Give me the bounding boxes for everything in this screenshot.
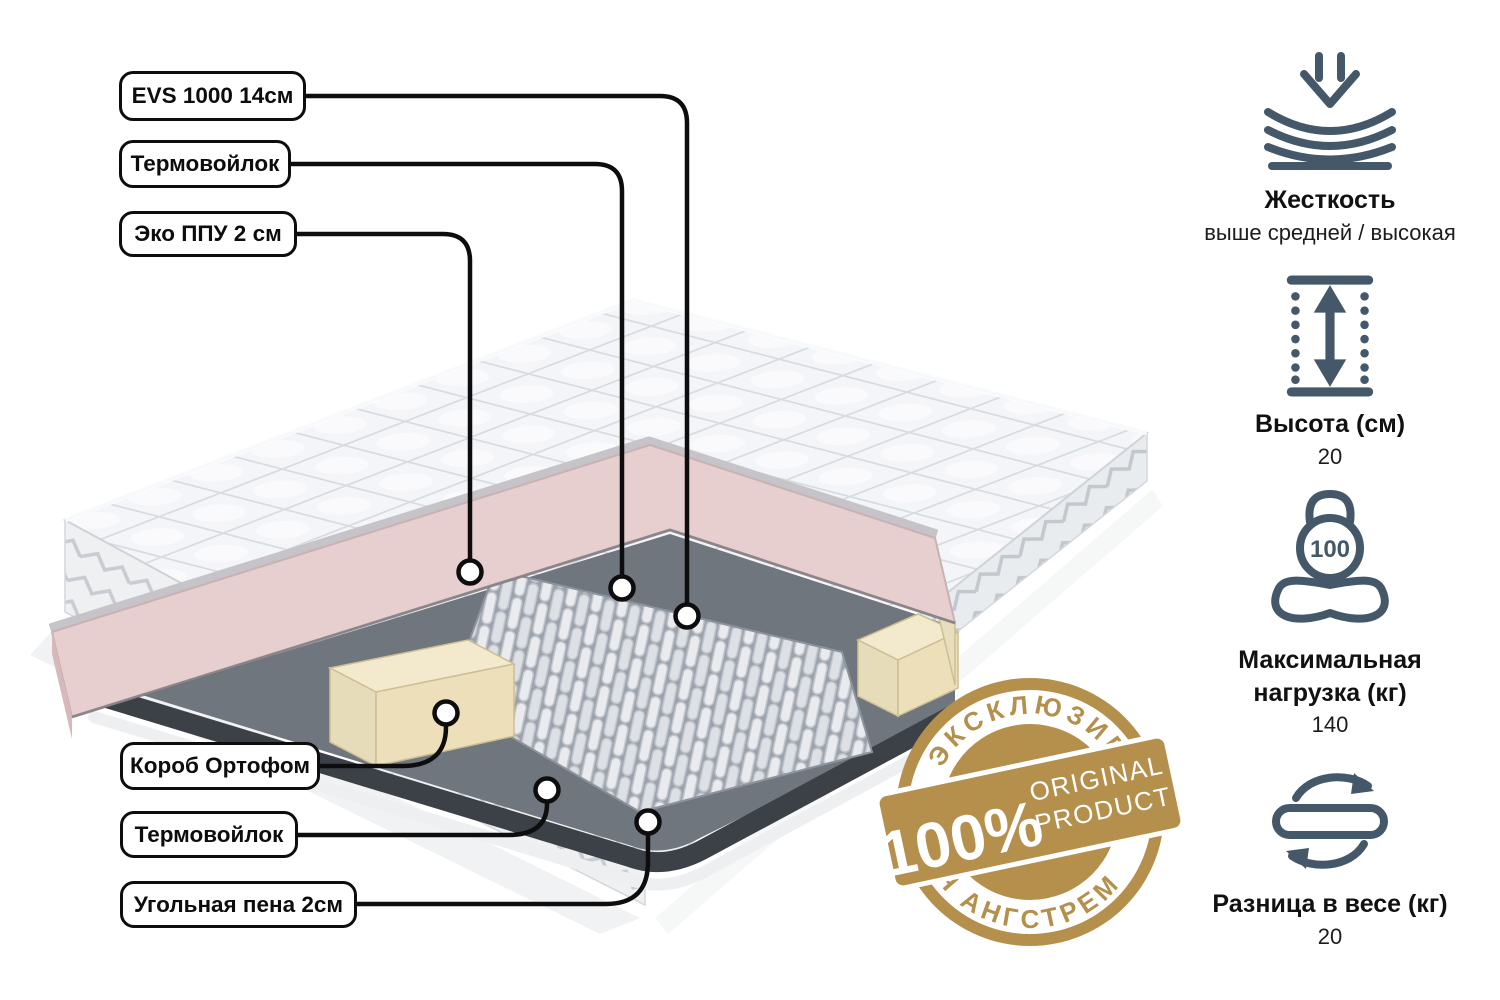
callout-dot (536, 779, 559, 802)
spec-value: выше средней / высокая (1160, 219, 1500, 247)
spec-value: 20 (1160, 923, 1500, 951)
callout-dot (435, 702, 458, 725)
spec-firmness: Жесткость выше средней / высокая (1160, 52, 1500, 246)
spec-height: Высота (см) 20 (1160, 274, 1500, 470)
firmness-icon (1260, 52, 1400, 174)
height-icon (1283, 274, 1377, 398)
spec-title: Максимальная нагрузка (кг) (1195, 644, 1465, 709)
callout-dot (676, 605, 699, 628)
spec-weight-difference: Разница в весе (кг) 20 (1160, 764, 1500, 950)
callout-label-evs: EVS 1000 14см (119, 71, 306, 121)
spec-title: Разница в весе (кг) (1160, 888, 1500, 921)
weight-difference-icon (1262, 764, 1398, 878)
callout-label-thermofelt-top: Термовойлок (119, 140, 291, 188)
spec-title: Жесткость (1160, 184, 1500, 217)
callout-label-ortofoam-box: Короб Ортофом (120, 742, 320, 790)
spec-value: 140 (1160, 711, 1500, 739)
max-load-icon: 100 (1260, 486, 1400, 634)
callout-label-thermofelt-bottom: Термовойлок (120, 811, 298, 858)
spec-title: Высота (см) (1160, 408, 1500, 441)
callout-dot (459, 561, 482, 584)
callout-label-eco-pu: Эко ППУ 2 см (119, 211, 297, 257)
callout-dot (611, 577, 634, 600)
spec-max-load: 100 Максимальная нагрузка (кг) 140 (1160, 486, 1500, 739)
kettlebell-value: 100 (1310, 536, 1350, 563)
spec-value: 20 (1160, 443, 1500, 471)
mattress-infographic: ЭКСКЛЮЗИВНО ДЛЯ АНГСТРЕМ 100% ORIGINAL P… (0, 0, 1500, 1000)
callout-dot (637, 811, 660, 834)
callout-label-charcoal-foam: Угольная пена 2см (120, 881, 357, 928)
